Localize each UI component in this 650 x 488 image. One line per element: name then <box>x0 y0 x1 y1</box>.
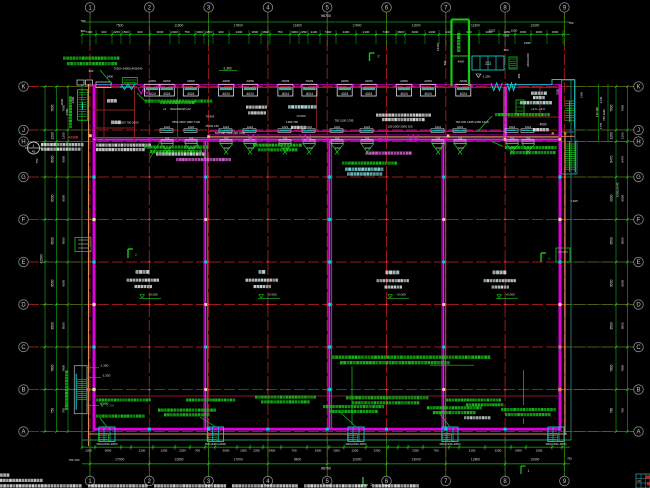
svg-text:76100 150: 76100 150 <box>205 124 219 128</box>
svg-text:3600: 3600 <box>262 30 269 34</box>
svg-text:8500: 8500 <box>62 156 66 163</box>
svg-text:900: 900 <box>517 73 521 78</box>
svg-text:AW09: AW09 <box>282 79 290 83</box>
svg-text:300x(2400+2000): 300x(2400+2000) <box>545 442 566 446</box>
svg-text:1500: 1500 <box>536 449 543 453</box>
svg-text:8500: 8500 <box>51 322 55 329</box>
svg-text:13000: 13000 <box>412 457 421 461</box>
svg-text:H: H <box>21 140 25 146</box>
svg-text:8500: 8500 <box>62 195 66 202</box>
svg-text:K: K <box>21 85 25 91</box>
svg-text:17000: 17000 <box>234 457 243 461</box>
svg-text:750 150: 750 150 <box>69 458 80 462</box>
svg-text:4024: 4024 <box>341 92 349 96</box>
svg-text:11800: 11800 <box>293 24 302 28</box>
svg-text:8500: 8500 <box>51 194 55 201</box>
svg-text:1520: 1520 <box>511 29 518 33</box>
svg-text:4024: 4024 <box>148 92 156 96</box>
svg-text:8500: 8500 <box>621 322 625 329</box>
svg-text:-1.300: -1.300 <box>100 364 109 368</box>
svg-text:-1.300: -1.300 <box>222 66 231 70</box>
svg-text:12800: 12800 <box>471 457 480 461</box>
svg-text:AW09: AW09 <box>306 79 314 83</box>
svg-text:J: J <box>22 128 25 134</box>
svg-text:13300: 13300 <box>530 457 539 461</box>
svg-text:1500: 1500 <box>520 30 527 34</box>
svg-text:750: 750 <box>81 19 86 23</box>
svg-text:2100: 2100 <box>469 449 476 453</box>
svg-text:9000: 9000 <box>610 194 614 201</box>
svg-text:1500: 1500 <box>552 30 559 34</box>
svg-text:2250: 2250 <box>352 449 359 453</box>
svg-text:2100: 2100 <box>139 449 146 453</box>
svg-text:3600: 3600 <box>397 30 404 34</box>
svg-text:7400: 7400 <box>325 30 332 34</box>
svg-text:9800: 9800 <box>294 457 302 461</box>
svg-text:2250: 2250 <box>179 449 186 453</box>
svg-text:12800: 12800 <box>174 457 183 461</box>
svg-text:4024: 4024 <box>400 92 408 96</box>
svg-text:+2:C~+4:C: +2:C~+4:C <box>531 107 546 111</box>
svg-text:C: C <box>21 345 26 351</box>
svg-text:900: 900 <box>89 69 94 73</box>
svg-text:7600: 7600 <box>610 104 614 111</box>
svg-text:-1.530: -1.530 <box>102 373 111 377</box>
svg-text:4024: 4024 <box>222 92 230 96</box>
svg-text:2250: 2250 <box>161 449 168 453</box>
svg-text:2100: 2100 <box>363 30 370 34</box>
svg-text:4024: 4024 <box>306 92 314 96</box>
svg-text:J: J <box>637 128 640 134</box>
svg-text:2250: 2250 <box>374 449 381 453</box>
svg-text:2400x2400: 2400x2400 <box>526 53 530 67</box>
svg-text:1500: 1500 <box>315 449 322 453</box>
svg-text:3000: 3000 <box>412 30 419 34</box>
svg-text:A5: A5 <box>32 150 36 154</box>
svg-text:1: 1 <box>548 256 551 261</box>
svg-text:2: 2 <box>377 54 380 59</box>
svg-text:1200: 1200 <box>85 449 92 453</box>
svg-text:8500: 8500 <box>62 237 66 244</box>
svg-text:8500: 8500 <box>62 322 66 329</box>
svg-text:4000: 4000 <box>539 123 546 127</box>
svg-text:2400: 2400 <box>236 30 243 34</box>
svg-text:1200: 1200 <box>51 132 55 139</box>
svg-text:AW09: AW09 <box>460 79 468 83</box>
svg-text:7400: 7400 <box>86 30 93 34</box>
svg-text:500 140 7000 295 7000: 500 140 7000 295 7000 <box>215 131 246 135</box>
svg-text:1500: 1500 <box>240 449 247 453</box>
svg-text:2: 2 <box>135 252 138 257</box>
svg-text:17000: 17000 <box>115 457 124 461</box>
svg-text:2250: 2250 <box>495 449 502 453</box>
svg-text:700: 700 <box>195 449 200 453</box>
svg-text:2400: 2400 <box>343 30 350 34</box>
svg-text:750 1100 1785: 750 1100 1785 <box>334 119 353 123</box>
svg-text:17800: 17800 <box>234 24 243 28</box>
svg-text:A: A <box>21 430 25 436</box>
svg-text:3000: 3000 <box>60 98 64 105</box>
svg-text:13300: 13300 <box>436 42 440 51</box>
svg-text:7400: 7400 <box>383 30 390 34</box>
svg-text:3000: 3000 <box>157 30 164 34</box>
svg-text:3600: 3600 <box>252 30 259 34</box>
svg-text:3260x3340: 3260x3340 <box>616 182 620 197</box>
svg-text:3000: 3000 <box>291 30 298 34</box>
svg-text:G: G <box>21 175 26 181</box>
svg-text:8470: 8470 <box>610 155 614 162</box>
svg-text:-1.300: -1.300 <box>106 404 115 408</box>
svg-text:AW09: AW09 <box>424 79 432 83</box>
svg-text:8500: 8500 <box>610 279 614 286</box>
svg-text:41500: 41500 <box>40 254 44 263</box>
svg-text:12000: 12000 <box>352 457 361 461</box>
svg-text:2140: 2140 <box>599 96 603 103</box>
svg-text:500: 500 <box>443 60 447 65</box>
svg-text:4024: 4024 <box>424 92 432 96</box>
svg-text:8500: 8500 <box>621 237 625 244</box>
svg-text:111: 111 <box>485 61 492 66</box>
svg-text:AW09: AW09 <box>163 79 171 83</box>
svg-text:8500: 8500 <box>621 280 625 287</box>
svg-text:4024: 4024 <box>365 92 373 96</box>
svg-text:780 3080: 780 3080 <box>602 109 606 121</box>
svg-text:750: 750 <box>277 30 282 34</box>
svg-text:7809: 7809 <box>503 34 510 38</box>
svg-text:9000: 9000 <box>621 195 625 202</box>
svg-text:AW09: AW09 <box>365 79 373 83</box>
svg-text:750: 750 <box>51 408 55 414</box>
svg-text:900: 900 <box>504 48 509 52</box>
svg-text:150 2000 2000 150: 150 2000 2000 150 <box>388 125 413 129</box>
svg-text:1770: 1770 <box>599 122 603 129</box>
svg-text:2400: 2400 <box>269 449 276 453</box>
svg-text:8470: 8470 <box>621 156 625 163</box>
svg-text:2250: 2250 <box>253 449 260 453</box>
svg-text:D: D <box>636 303 641 309</box>
svg-text:5000: 5000 <box>223 449 230 453</box>
svg-text:8500: 8500 <box>51 237 55 244</box>
svg-text:8500: 8500 <box>51 279 55 286</box>
svg-text:780: 780 <box>621 408 625 413</box>
svg-text:8500: 8500 <box>62 280 66 287</box>
svg-text:17800: 17800 <box>352 24 361 28</box>
svg-text:B: B <box>21 388 25 394</box>
svg-text:750: 750 <box>569 21 574 25</box>
svg-text:2400: 2400 <box>107 74 114 78</box>
svg-text:4024: 4024 <box>460 92 468 96</box>
svg-text:H: H <box>636 140 640 146</box>
svg-text:D: D <box>21 303 26 309</box>
svg-text:2250: 2250 <box>205 30 212 34</box>
svg-text:1200: 1200 <box>62 132 66 139</box>
svg-text:B: B <box>636 388 640 394</box>
svg-text:F: F <box>22 218 26 224</box>
svg-text:4024: 4024 <box>163 92 171 96</box>
svg-text:-1.250: -1.250 <box>482 74 491 78</box>
svg-text:8500: 8500 <box>610 322 614 329</box>
svg-text:=0.000: =0.000 <box>296 114 306 118</box>
svg-text:2250: 2250 <box>300 30 307 34</box>
svg-text:F: F <box>637 218 641 224</box>
svg-text:2400: 2400 <box>429 30 436 34</box>
svg-text:70*500: 70*500 <box>206 114 215 118</box>
svg-text:7800: 7800 <box>621 365 625 372</box>
svg-text:2700: 2700 <box>65 108 69 115</box>
svg-text:1200: 1200 <box>610 132 614 139</box>
svg-text:+6: +6 <box>163 107 167 111</box>
svg-text:AW09: AW09 <box>246 79 254 83</box>
svg-text:900: 900 <box>137 30 142 34</box>
svg-text:+0.000: +0.000 <box>396 293 406 297</box>
svg-text:7800: 7800 <box>51 364 55 371</box>
svg-text:1200: 1200 <box>621 132 625 139</box>
svg-text:700: 700 <box>291 449 296 453</box>
svg-text:7890 2500 1890 7100: 7890 2500 1890 7100 <box>172 120 201 124</box>
svg-text:900: 900 <box>101 30 106 34</box>
svg-text:1500: 1500 <box>333 449 340 453</box>
svg-text:7800: 7800 <box>610 364 614 371</box>
svg-text:G: G <box>636 175 641 181</box>
svg-text:750: 750 <box>184 30 189 34</box>
svg-text:3000: 3000 <box>196 30 203 34</box>
svg-text:750: 750 <box>62 408 66 413</box>
svg-text:2140: 2140 <box>580 92 584 98</box>
svg-text:E: E <box>21 260 25 266</box>
svg-text:7500: 7500 <box>116 24 124 28</box>
svg-text:2250: 2250 <box>412 449 419 453</box>
svg-text:750 940 1485 2350 1485: 750 940 1485 2350 1485 <box>455 120 489 124</box>
svg-text:4024: 4024 <box>187 92 195 96</box>
svg-text:5000: 5000 <box>515 449 522 453</box>
svg-text:11800: 11800 <box>174 24 183 28</box>
svg-text:8500: 8500 <box>610 237 614 244</box>
svg-text:7800: 7800 <box>62 365 66 372</box>
svg-text:+0.000: +0.000 <box>505 293 515 297</box>
svg-text:700 2000 700 2000: 700 2000 700 2000 <box>114 120 139 124</box>
svg-text:8500: 8500 <box>51 155 55 162</box>
svg-text:K: K <box>636 85 640 91</box>
svg-text:300x(2400+2000): 300x(2400+2000) <box>205 442 226 446</box>
svg-text:1: 1 <box>33 144 35 148</box>
svg-text:900: 900 <box>218 30 223 34</box>
svg-text:1500: 1500 <box>122 30 129 34</box>
svg-text:3600: 3600 <box>536 30 543 34</box>
svg-text:700: 700 <box>433 449 438 453</box>
svg-text:11800: 11800 <box>412 24 421 28</box>
svg-text:140 490: 140 490 <box>595 107 599 118</box>
svg-text:+0.000: +0.000 <box>267 293 277 297</box>
svg-text:700(2>2400(1400)340: 700(2>2400(1400)340 <box>114 67 143 71</box>
svg-text:96700: 96700 <box>321 14 331 18</box>
svg-text:11800: 11800 <box>471 24 480 28</box>
svg-text:7600: 7600 <box>51 104 55 111</box>
svg-text:300x(2400+2000): 300x(2400+2000) <box>96 442 117 446</box>
svg-text:E: E <box>636 260 640 266</box>
svg-text:13300: 13300 <box>530 24 539 28</box>
svg-text:7.925: 7.925 <box>570 199 578 203</box>
svg-text:4024: 4024 <box>282 92 290 96</box>
svg-text:AW09: AW09 <box>400 79 408 83</box>
svg-text:750: 750 <box>567 457 572 461</box>
svg-text:96700: 96700 <box>321 467 331 471</box>
svg-text:4024: 4024 <box>246 92 254 96</box>
svg-text:3000: 3000 <box>105 449 112 453</box>
svg-text:AW09: AW09 <box>341 79 349 83</box>
svg-text:300x2400(P)+M: 300x2400(P)+M <box>170 107 191 111</box>
svg-text:300x(2400+2000): 300x(2400+2000) <box>345 442 366 446</box>
svg-text:4600: 4600 <box>458 60 465 64</box>
svg-text:2250: 2250 <box>113 30 120 34</box>
svg-text:2100: 2100 <box>311 30 318 34</box>
svg-text:5102: 5102 <box>489 29 496 33</box>
svg-text:1300: 1300 <box>524 41 531 45</box>
svg-text:2400: 2400 <box>171 30 178 34</box>
svg-text:7000: 7000 <box>556 89 560 95</box>
svg-text:7600: 7600 <box>621 105 625 112</box>
svg-text:AW09: AW09 <box>187 79 195 83</box>
svg-text:A: A <box>636 430 640 436</box>
svg-text:+0.000: +0.000 <box>148 293 158 297</box>
svg-text:AW09: AW09 <box>222 79 230 83</box>
svg-text:300x(2400+2000): 300x(2400+2000) <box>439 442 460 446</box>
svg-text:C: C <box>636 345 641 351</box>
svg-text:750: 750 <box>35 158 39 163</box>
svg-text:AW09: AW09 <box>148 79 156 83</box>
svg-text:900: 900 <box>81 29 86 33</box>
svg-text:780: 780 <box>610 408 614 414</box>
svg-text:1: 1 <box>528 469 530 473</box>
svg-text:1300 700: 1300 700 <box>286 120 298 124</box>
